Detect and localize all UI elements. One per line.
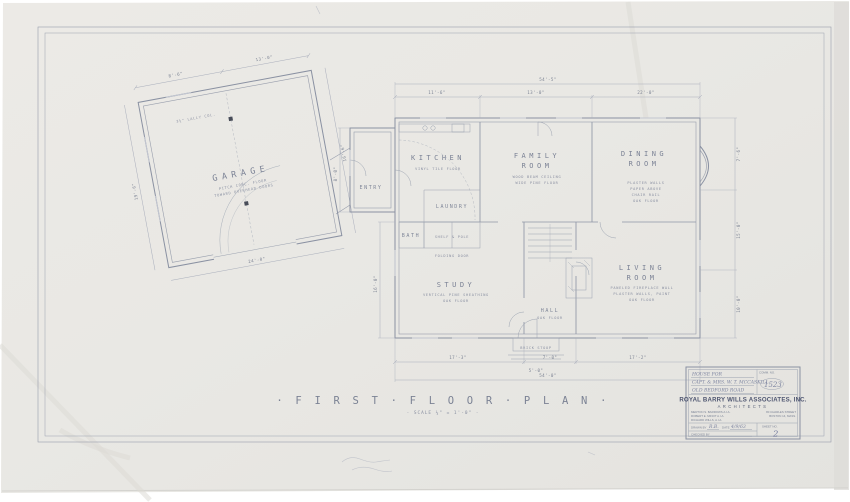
dim-label: 10'-0" [736, 295, 741, 313]
room-label-hall: HALL [541, 308, 559, 314]
hall-note: OAK FLOOR [537, 316, 563, 320]
family-note-1: WOOD BEAM CEILING [513, 175, 562, 179]
room-label-family: FAMILY [514, 152, 560, 160]
drawn-by-value: R.B. [708, 424, 719, 430]
study-note-1: VERTICAL PINE SHEATHING [423, 293, 489, 297]
living-note-3: OAK FLOOR [629, 298, 655, 302]
dim-label: 8'-0" [333, 167, 338, 182]
dim-label: 17'-2" [629, 355, 647, 360]
title-block-house-for: HOUSE FOR [691, 372, 723, 378]
room-label-living: LIVING [619, 264, 665, 272]
kitchen-note: VINYL TILE FLOOR [415, 167, 461, 171]
dim-label: 54'-0" [539, 373, 557, 378]
lally-column [228, 117, 233, 122]
drawing-scale: · SCALE ¼" = 1'-0" · [407, 410, 480, 416]
stoop-note: BRICK STOOP [520, 346, 552, 350]
dim-label: 16'-0" [373, 275, 378, 293]
architect-name-3: RICHARD WILLS, A.I.A. [691, 418, 722, 422]
closet-note-1: SHELF & POLE [435, 235, 469, 239]
room-label-bath: BATH [402, 233, 420, 239]
drawing-title: · F I R S T · F L O O R · P L A N · [276, 395, 609, 407]
room-label-family-2: ROOM [522, 162, 553, 170]
dim-label: 22'-0" [637, 90, 655, 95]
dim-label: 17'-3" [449, 355, 467, 360]
drawn-by-label: DRAWN BY [691, 426, 707, 430]
firm-subtitle: ARCHITECTS [718, 404, 769, 409]
study-note-2: OAK FLOOR [443, 299, 469, 303]
firm-name: ROYAL BARRY WILLS ASSOCIATES, INC. [679, 397, 806, 404]
dim-label: 15'-0" [736, 221, 741, 239]
dining-note-3: CHAIR RAIL [632, 193, 661, 197]
dim-label: 7'-0" [543, 355, 558, 360]
room-label-kitchen: KITCHEN [411, 154, 465, 162]
family-note-2: WIDE PINE FLOOR [516, 181, 559, 185]
room-label-dining-2: ROOM [629, 160, 660, 168]
room-label-living-2: ROOM [627, 274, 658, 282]
blueprint-sheet: 3½" LALLY COL. GARAGE PITCH CONC. FLOOR … [0, 0, 850, 502]
firm-address-2: BOSTON 14, MASS. [769, 414, 796, 418]
room-label-study: STUDY [437, 281, 476, 289]
dim-label: 54'-5" [539, 77, 557, 82]
living-note-1: PANELED FIREPLACE WALL [611, 286, 674, 290]
title-block-project: OLD BEDFORD ROAD [692, 388, 744, 394]
lally-column [244, 201, 249, 206]
sheet-no-label: SHEET NO. [762, 425, 778, 429]
comm-no-label: COMM. NO. [759, 371, 775, 375]
room-label-laundry: LAUNDRY [436, 204, 468, 210]
title-block-client: CAPT. & MRS. W. T. MCCASKILL [692, 380, 769, 386]
closet-note-2: FOLDING DOOR [435, 254, 469, 258]
sheet-no-value: 2 [772, 430, 778, 440]
dim-label: 7'-6" [736, 147, 741, 162]
dim-label: 11'-6" [428, 90, 446, 95]
dining-note-2: PAPER ABOVE [630, 187, 662, 191]
dining-note-4: OAK FLOOR [633, 199, 659, 203]
floor-plan-drawing: 3½" LALLY COL. GARAGE PITCH CONC. FLOOR … [0, 0, 850, 502]
room-label-entry: ENTRY [359, 185, 382, 191]
dim-label: 5'-0" [529, 368, 544, 373]
living-note-2: PLASTER WALLS, PAINT [613, 292, 670, 296]
dining-note-1: PLASTER WALLS [627, 181, 664, 185]
date-value: 4/9/63 [730, 424, 746, 430]
dim-label: 13'-0" [527, 90, 545, 95]
room-label-dining: DINING [621, 150, 667, 158]
date-label: DATE [722, 426, 730, 430]
comm-no-value: 1523 [764, 381, 782, 389]
checked-by-label: CHECKED BY [691, 433, 710, 437]
